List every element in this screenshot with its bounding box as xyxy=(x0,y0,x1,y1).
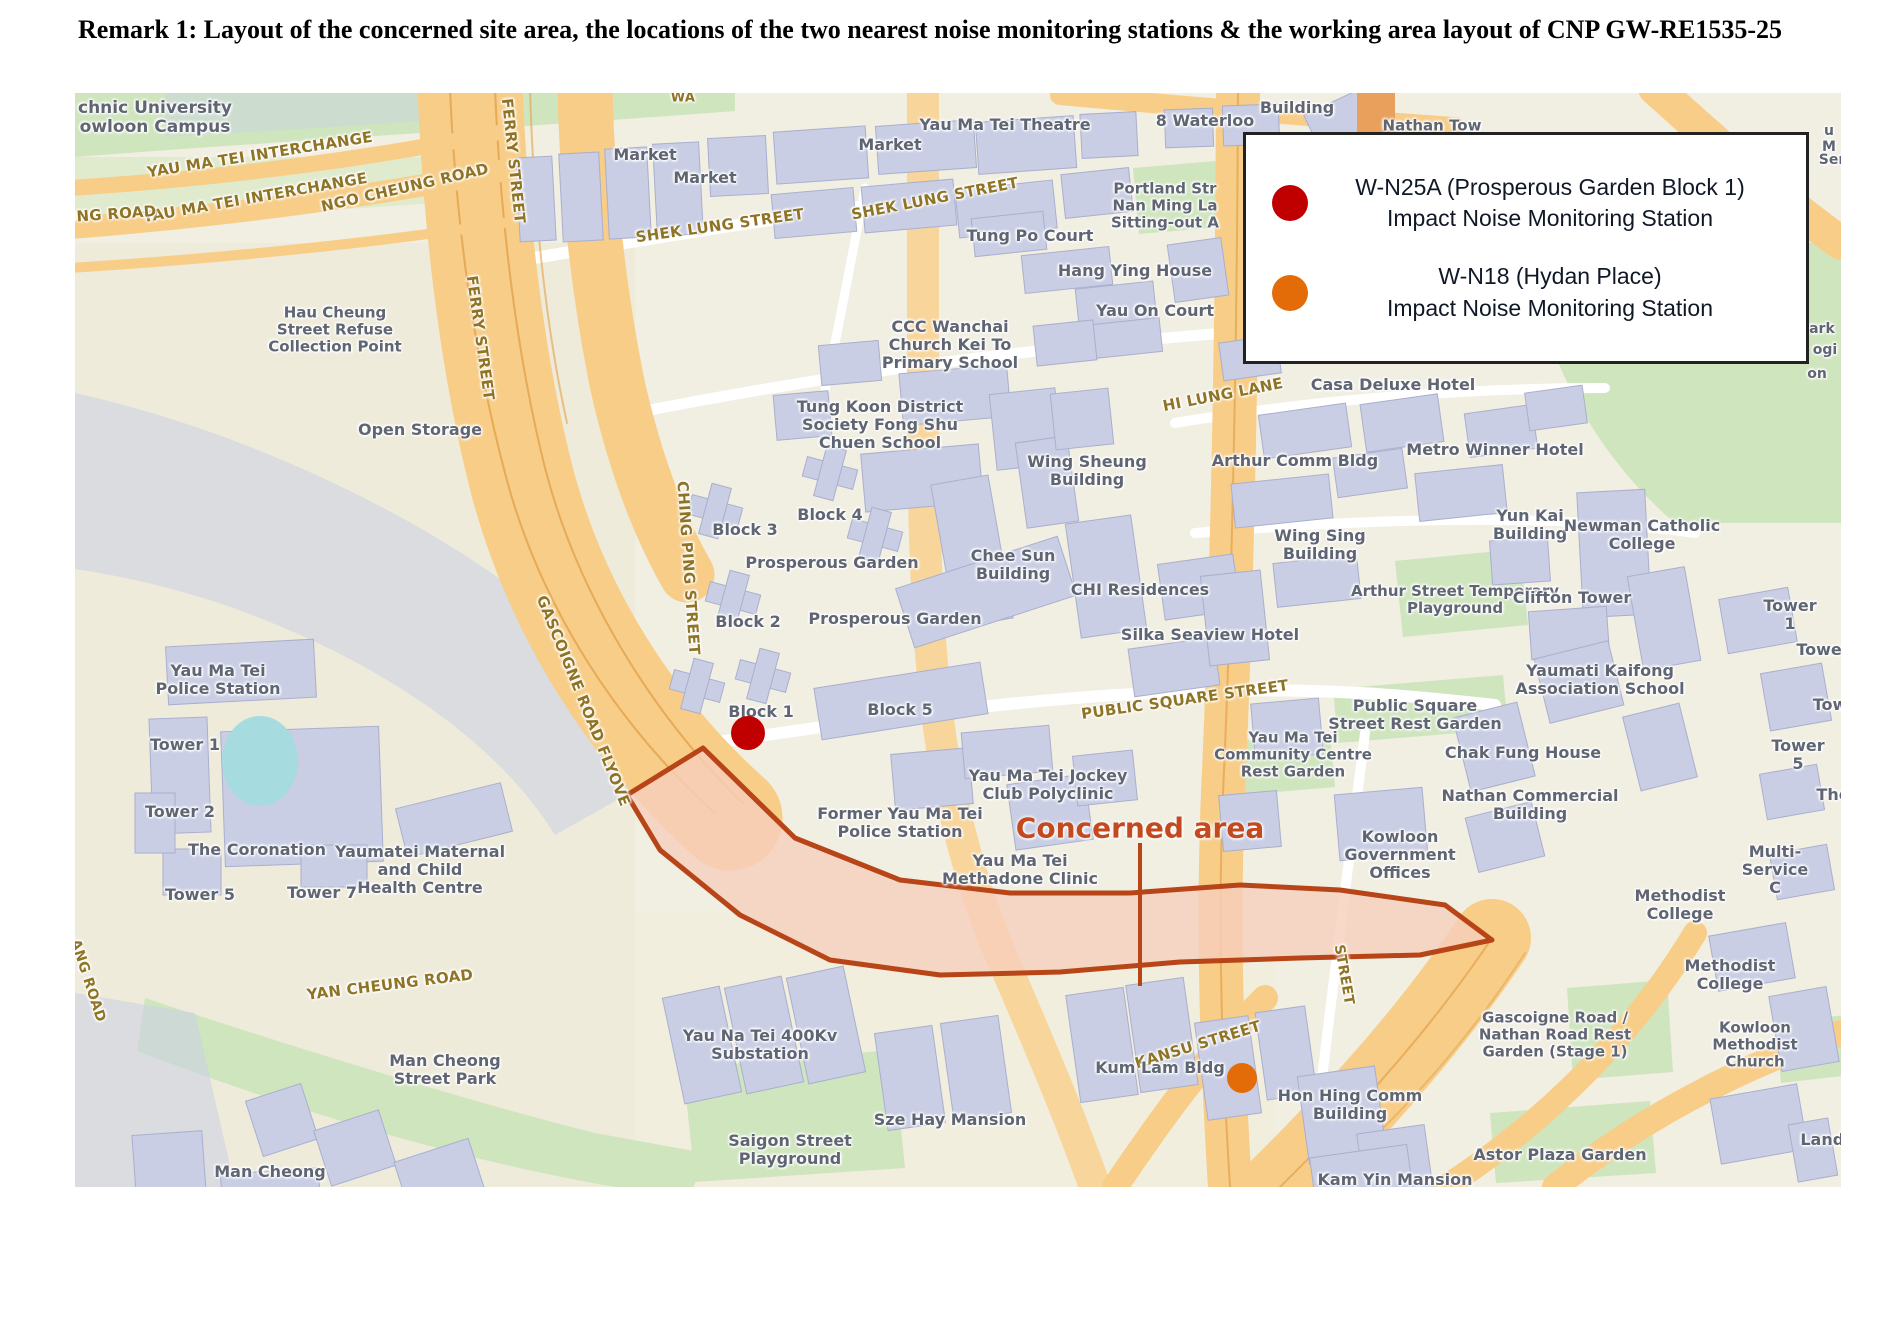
legend-row-w-n18: W-N18 (Hydan Place) Impact Noise Monitor… xyxy=(1246,261,1806,324)
legend-line1: W-N25A (Prosperous Garden Block 1) xyxy=(1308,172,1792,204)
remark-title: Remark 1: Layout of the concerned site a… xyxy=(78,12,1836,48)
noise-station-w-n25a-marker xyxy=(731,716,765,750)
document-page: Remark 1: Layout of the concerned site a… xyxy=(0,0,1884,1322)
orange-dot-icon xyxy=(1272,275,1308,311)
noise-station-w-n18-marker xyxy=(1227,1063,1257,1093)
legend-row-w-n25a: W-N25A (Prosperous Garden Block 1) Impac… xyxy=(1246,172,1806,235)
legend-line2: Impact Noise Monitoring Station xyxy=(1308,293,1792,325)
legend-line1: W-N18 (Hydan Place) xyxy=(1308,261,1792,293)
legend-line2: Impact Noise Monitoring Station xyxy=(1308,203,1792,235)
legend-text-w-n18: W-N18 (Hydan Place) Impact Noise Monitor… xyxy=(1308,261,1792,324)
legend-box: W-N25A (Prosperous Garden Block 1) Impac… xyxy=(1243,132,1809,364)
legend-text-w-n25a: W-N25A (Prosperous Garden Block 1) Impac… xyxy=(1308,172,1792,235)
red-dot-icon xyxy=(1272,185,1308,221)
site-map: chnic University owloon CampusYAU MA TEI… xyxy=(75,93,1841,1187)
concerned-area-label: Concerned area xyxy=(1016,812,1264,845)
